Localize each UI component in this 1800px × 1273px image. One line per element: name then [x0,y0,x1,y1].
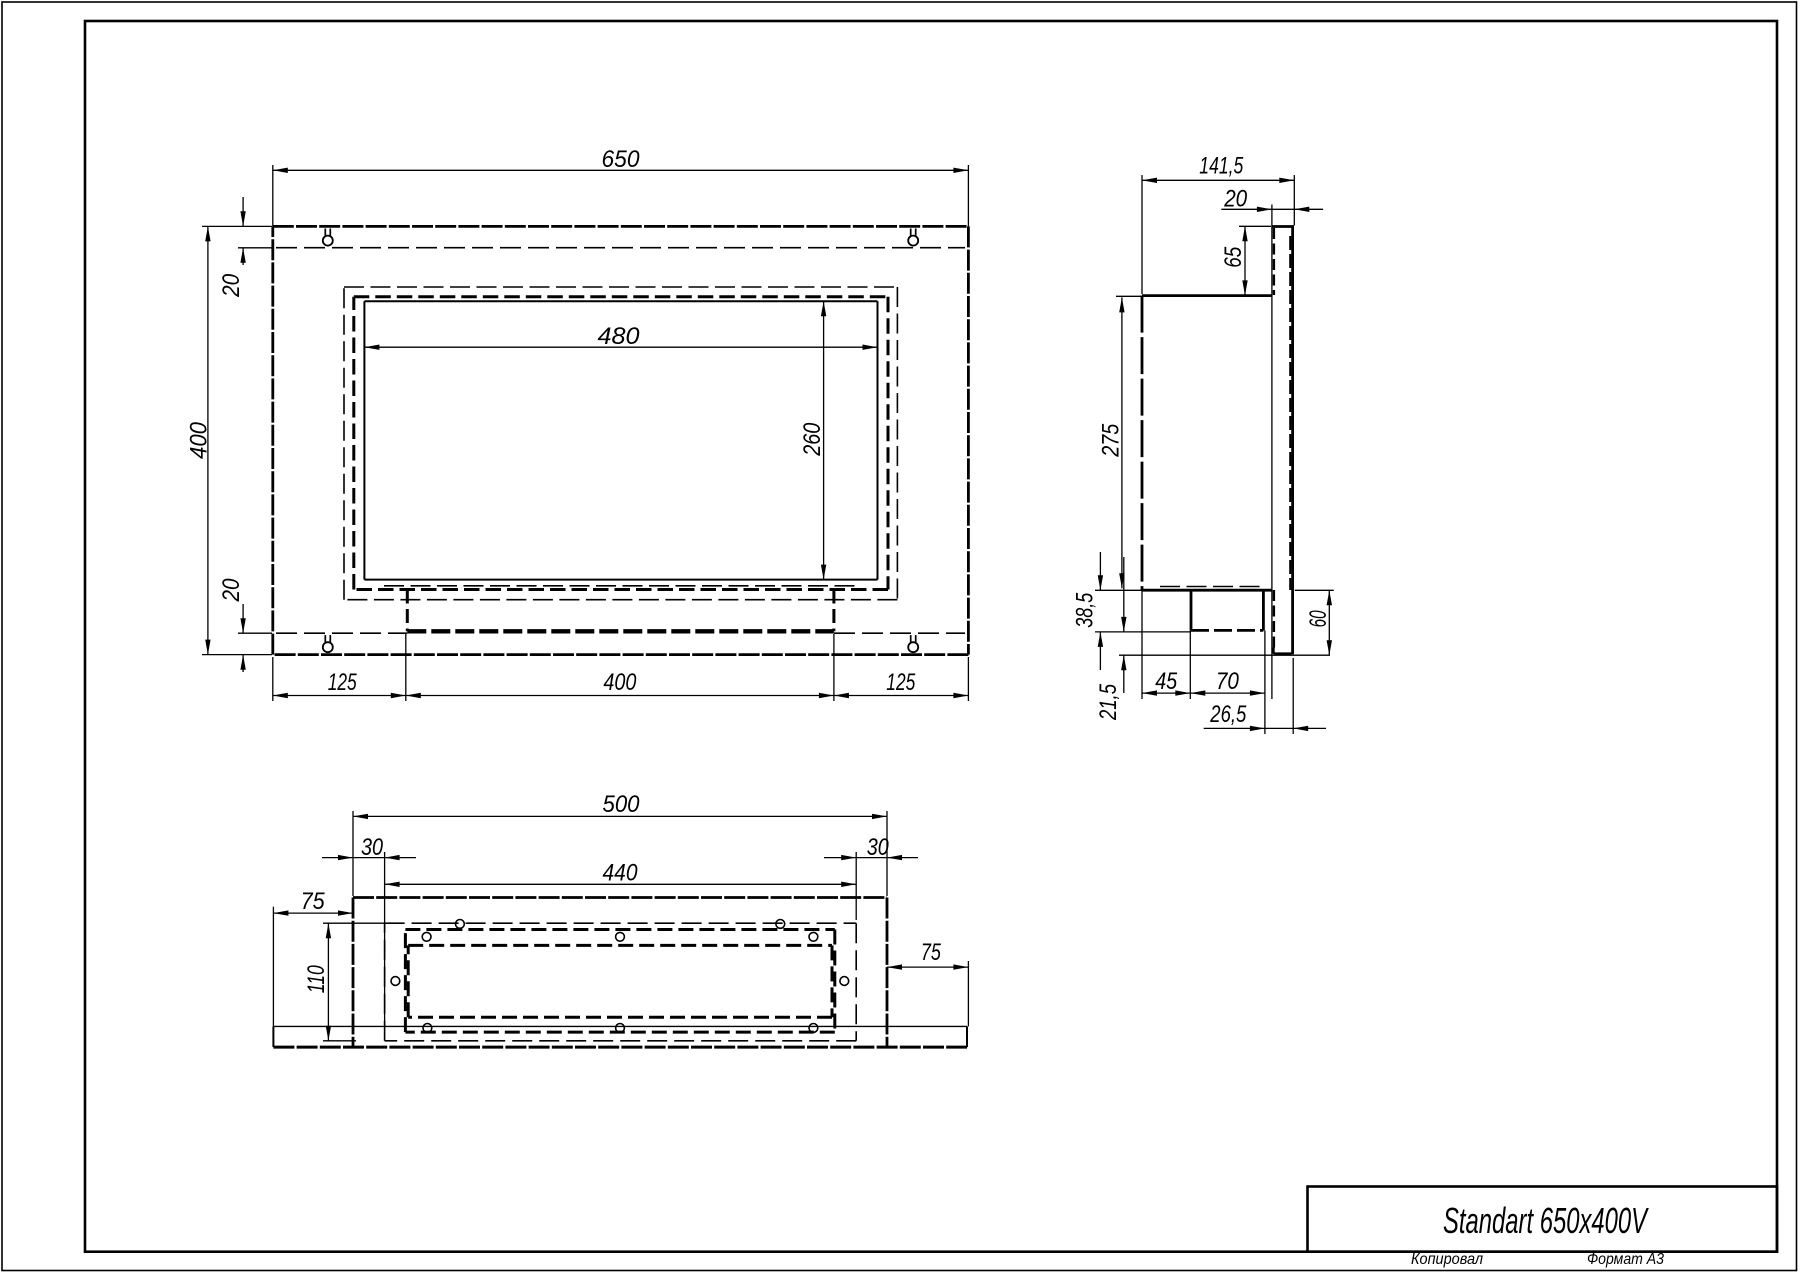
svg-text:20: 20 [1223,186,1247,213]
svg-text:125: 125 [328,669,357,696]
svg-text:125: 125 [886,669,915,696]
svg-text:30: 30 [361,834,384,861]
svg-text:60: 60 [1305,610,1332,627]
svg-text:30: 30 [867,834,890,861]
svg-text:480: 480 [598,323,641,350]
svg-text:440: 440 [603,860,639,887]
svg-text:20: 20 [218,273,245,297]
svg-text:Копировал: Копировал [1411,1251,1483,1268]
svg-text:110: 110 [303,965,330,993]
svg-text:400: 400 [185,421,212,459]
svg-text:Standart 650x400V: Standart 650x400V [1443,1200,1649,1241]
svg-text:20: 20 [218,578,245,602]
svg-text:45: 45 [1155,668,1178,695]
svg-text:Формат А3: Формат А3 [1587,1251,1664,1268]
svg-text:260: 260 [799,422,826,456]
svg-text:500: 500 [603,791,641,818]
svg-text:650: 650 [602,146,641,173]
svg-text:26,5: 26,5 [1210,701,1247,728]
svg-text:38,5: 38,5 [1071,592,1098,627]
svg-text:65: 65 [1220,246,1247,268]
svg-text:70: 70 [1216,668,1240,695]
svg-text:141,5: 141,5 [1199,153,1243,180]
svg-text:275: 275 [1097,423,1124,457]
svg-text:75: 75 [921,939,941,966]
svg-text:400: 400 [603,669,637,696]
svg-text:21,5: 21,5 [1095,684,1122,721]
svg-text:75: 75 [301,888,326,915]
